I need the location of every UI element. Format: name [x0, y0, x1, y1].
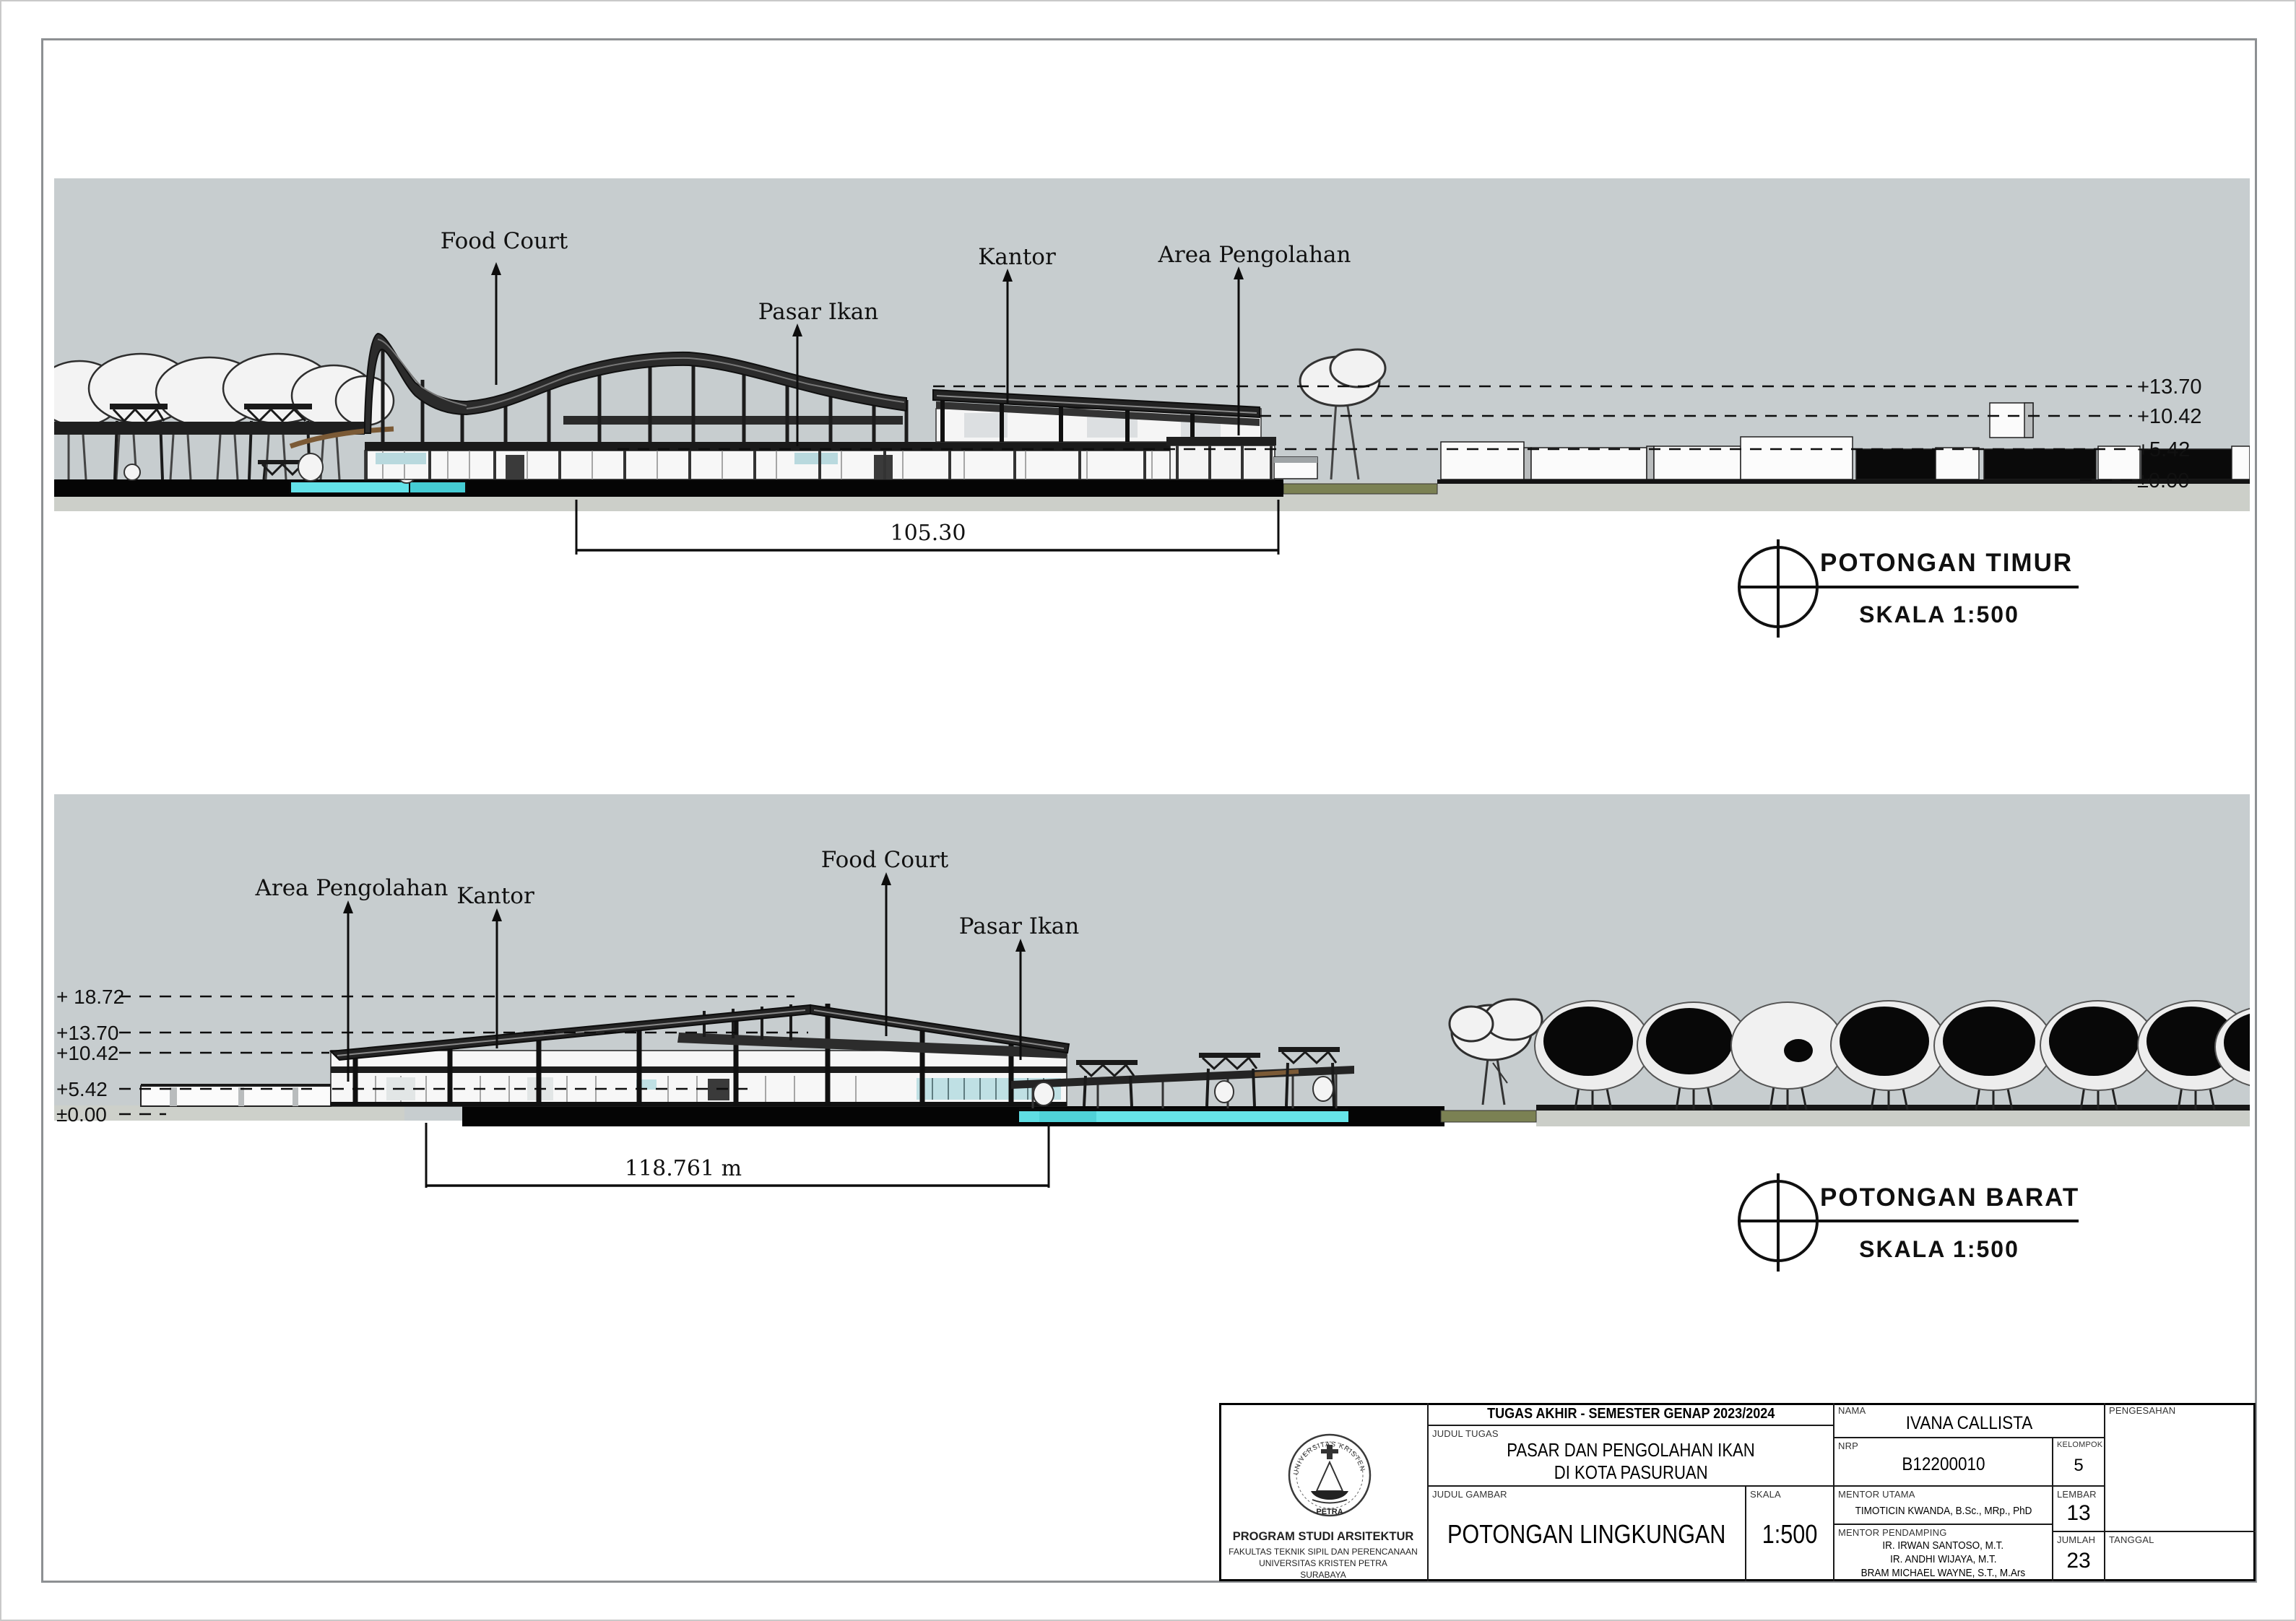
timur-section-title: POTONGAN TIMUR — [1820, 549, 2073, 578]
level-13-70: +13.70 — [56, 1022, 118, 1044]
upper-floor-slab — [563, 416, 903, 425]
institution-program: PROGRAM STUDI ARSITEKTUR — [1219, 1530, 1427, 1544]
mentor-pendamping-2: IR. ANDHI WIJAYA, M.T. — [1890, 1552, 1996, 1566]
base-slab — [331, 1102, 1067, 1106]
floor-slab — [331, 1066, 1067, 1073]
barat-scale-label: SKALA 1:500 — [1820, 1236, 2058, 1263]
jumlah-cell: JUMLAH 23 — [2053, 1532, 2105, 1581]
ground-line-right — [1536, 1105, 2250, 1111]
tanggal-label: TANGGAL — [2109, 1534, 2154, 1545]
nama-value: IVANA CALLISTA — [1906, 1413, 2032, 1434]
mentor-pendamping-3: BRAM MICHAEL WAYNE, S.T., M.Ars — [1861, 1566, 2026, 1580]
pengesahan-cell: PENGESAHAN — [2105, 1403, 2256, 1532]
potongan-timur-drawing: +13.70 +10.42 +5.42 ±0.00 Food Court Pas… — [54, 178, 2250, 568]
nrp-cell: NRP B12200010 — [1834, 1438, 2053, 1487]
skala-cell: SKALA 1:500 — [1746, 1487, 1834, 1581]
label-pasar-ikan: Pasar Ikan — [758, 299, 879, 325]
judul-gambar-value: POTONGAN LINGKUNGAN — [1447, 1519, 1725, 1550]
level-5-42: +5.42 — [56, 1078, 108, 1100]
label-area-pengolahan: Area Pengolahan — [255, 875, 449, 901]
nrp-value: B12200010 — [1902, 1454, 1985, 1475]
mentor-pendamping-1: IR. IRWAN SANTOSO, M.T. — [1883, 1539, 2004, 1552]
kelompok-label: KELOMPOK — [2057, 1440, 2102, 1449]
institution-city: SURABAYA — [1219, 1570, 1427, 1580]
barat-title-rule — [1821, 1220, 2079, 1222]
skala-value: 1:500 — [1762, 1519, 1818, 1550]
judul-tugas-line1: PASAR DAN PENGOLAHAN IKAN — [1507, 1439, 1754, 1461]
walkway-deck — [54, 422, 365, 435]
timur-section-symbol — [1733, 538, 1827, 640]
judul-tugas-label: JUDUL TUGAS — [1432, 1428, 1499, 1439]
site-platform — [54, 479, 1283, 497]
mentor-pendamping-label: MENTOR PENDAMPING — [1838, 1527, 1947, 1538]
barat-section-symbol — [1733, 1172, 1827, 1274]
dimension-value: 105.30 — [891, 521, 966, 546]
seal-banner-text: PETRA — [1316, 1508, 1343, 1516]
barat-section-title: POTONGAN BARAT — [1820, 1183, 2073, 1212]
level-5-42: +5.42 — [2137, 438, 2190, 461]
nrp-label: NRP — [1838, 1440, 1858, 1451]
mentor-pendamping-cell: MENTOR PENDAMPING IR. IRWAN SANTOSO, M.T… — [1834, 1525, 2053, 1581]
pool — [290, 482, 410, 493]
pool-segment — [1019, 1111, 1039, 1122]
level-0-00: ±0.00 — [56, 1103, 107, 1126]
mentor-utama-cell: MENTOR UTAMA TIMOTICIN KWANDA, B.Sc., MR… — [1834, 1487, 2053, 1525]
timur-title-rule — [1821, 586, 2079, 588]
grass-strip — [1441, 1111, 1536, 1122]
label-food-court: Food Court — [821, 847, 949, 873]
wing-roof — [1166, 437, 1276, 446]
tanggal-cell: TANGGAL — [2105, 1532, 2256, 1581]
level-10-42: +10.42 — [2137, 405, 2202, 428]
title-block: UNIVERSITAS KRISTEN PETRA PROGRAM STUDI … — [1219, 1403, 2256, 1581]
institution-university: UNIVERSITAS KRISTEN PETRA — [1219, 1558, 1427, 1568]
ground-strip-right — [1536, 1111, 2250, 1126]
skala-label: SKALA — [1750, 1489, 1781, 1500]
pool-edge — [1019, 1108, 1348, 1111]
timur-scale-label: SKALA 1:500 — [1820, 601, 2058, 628]
kelompok-cell: KELOMPOK 5 — [2053, 1438, 2105, 1487]
lembar-value: 13 — [2066, 1501, 2090, 1526]
lembar-cell: LEMBAR 13 — [2053, 1487, 2105, 1532]
judul-tugas-cell: JUDUL TUGAS PASAR DAN PENGOLAHAN IKAN DI… — [1429, 1426, 1834, 1487]
header-cell: TUGAS AKHIR - SEMESTER GENAP 2023/2024 — [1429, 1403, 1834, 1426]
grass-strip — [1283, 484, 1437, 494]
judul-tugas-line2: DI KOTA PASURUAN — [1554, 1461, 1708, 1484]
mentor-utama-label: MENTOR UTAMA — [1838, 1489, 1915, 1500]
pengolahan-wing — [1166, 437, 1276, 479]
mentor-utama-value: TIMOTICIN KWANDA, B.Sc., MRp., PhD — [1855, 1505, 2032, 1517]
lembar-label: LEMBAR — [2057, 1489, 2097, 1500]
kiosk — [1274, 457, 1317, 479]
dimension-118: 118.761 m — [426, 1123, 1049, 1188]
nama-label: NAMA — [1838, 1405, 1866, 1416]
pool — [1096, 1111, 1348, 1122]
low-block — [141, 1084, 331, 1106]
institution-faculty: FAKULTAS TEKNIK SIPIL DAN PERENCANAAN — [1219, 1547, 1427, 1557]
kelompok-value: 5 — [2074, 1456, 2083, 1476]
label-pasar-ikan: Pasar Ikan — [959, 913, 1080, 939]
logo-cell: UNIVERSITAS KRISTEN PETRA PROGRAM STUDI … — [1219, 1403, 1429, 1581]
label-kantor: Kantor — [456, 883, 534, 909]
university-seal: UNIVERSITAS KRISTEN PETRA — [1279, 1425, 1380, 1526]
jumlah-label: JUMLAH — [2057, 1534, 2095, 1545]
level-10-42: +10.42 — [56, 1042, 118, 1064]
nama-cell: NAMA IVANA CALLISTA — [1834, 1403, 2105, 1438]
pool-segment — [410, 482, 466, 493]
level-0-00: ±0.00 — [2137, 469, 2189, 492]
label-food-court: Food Court — [441, 228, 568, 254]
level-13-70: +13.70 — [2137, 375, 2202, 399]
pengesahan-label: PENGESAHAN — [2109, 1405, 2175, 1416]
header-text: TUGAS AKHIR - SEMESTER GENAP 2023/2024 — [1487, 1406, 1775, 1422]
drawing-sheet: +13.70 +10.42 +5.42 ±0.00 Food Court Pas… — [0, 0, 2296, 1621]
jumlah-value: 23 — [2066, 1549, 2090, 1573]
pool-segment — [1039, 1111, 1096, 1122]
level-18-72: + 18.72 — [56, 986, 124, 1008]
label-kantor: Kantor — [978, 244, 1056, 270]
judul-gambar-cell: JUDUL GAMBAR POTONGAN LINGKUNGAN — [1429, 1487, 1746, 1581]
label-area-pengolahan: Area Pengolahan — [1158, 242, 1351, 268]
dimension-value: 118.761 m — [625, 1156, 742, 1181]
judul-gambar-label: JUDUL GAMBAR — [1432, 1489, 1507, 1500]
potongan-barat-drawing: + 18.72 +13.70 +10.42 +5.42 ±0.00 Area P… — [54, 794, 2250, 1199]
